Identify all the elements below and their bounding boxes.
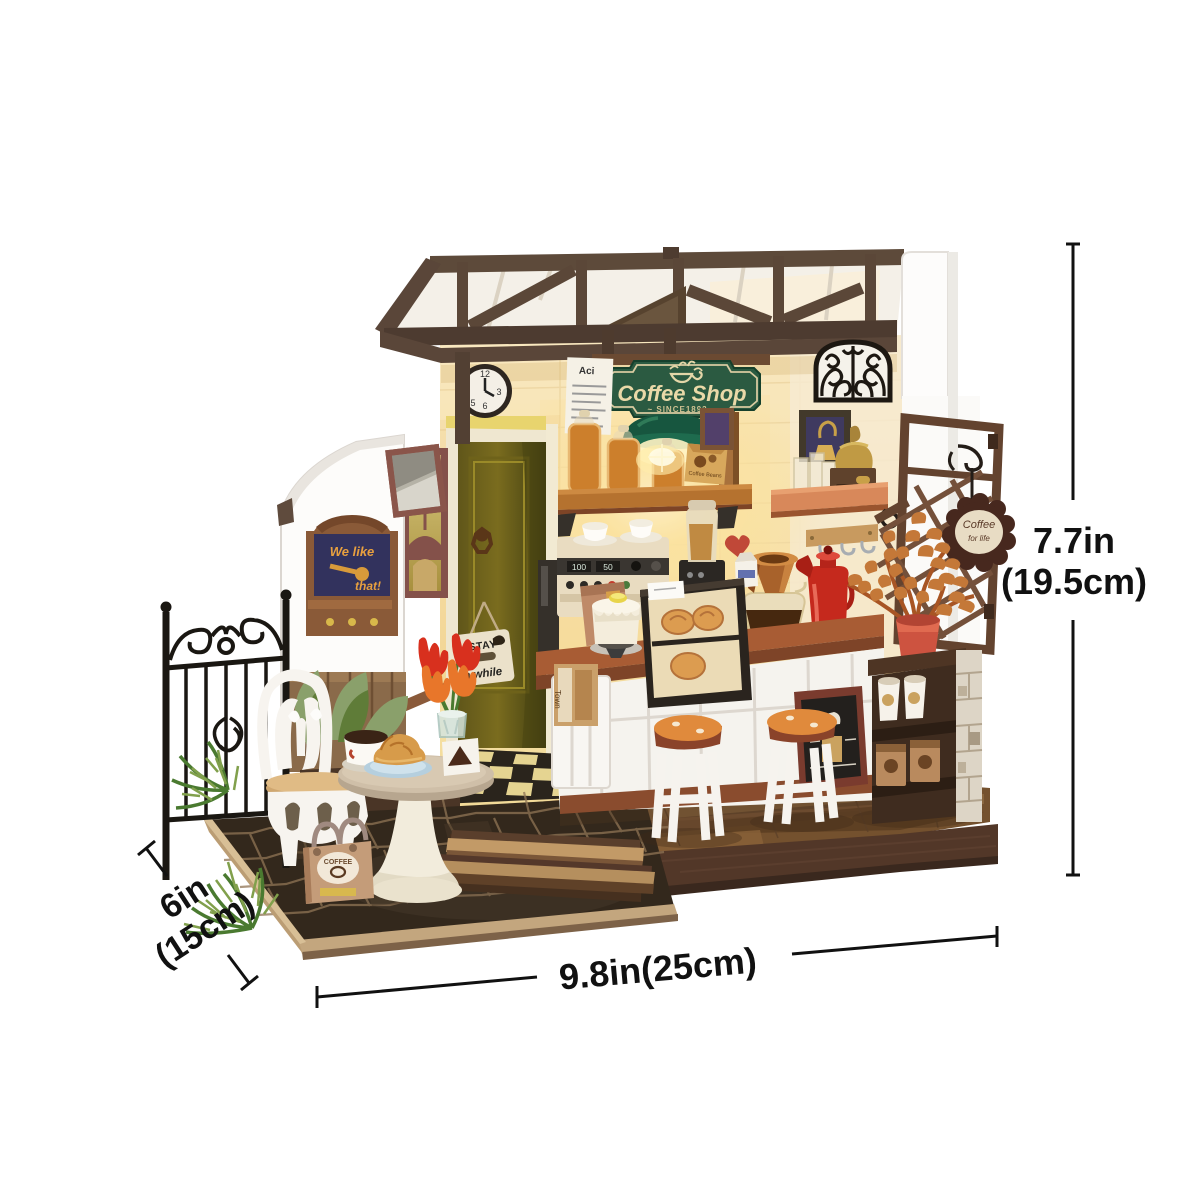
- svg-text:Coffee: Coffee: [963, 519, 995, 531]
- svg-text:that!: that!: [355, 579, 381, 593]
- svg-text:COFFEE: COFFEE: [324, 859, 353, 866]
- svg-text:100: 100: [572, 562, 586, 572]
- svg-text:5: 5: [470, 398, 475, 408]
- svg-text:Aci: Aci: [579, 366, 595, 378]
- svg-text:for life: for life: [968, 534, 990, 543]
- svg-text:(19.5cm): (19.5cm): [1001, 561, 1147, 602]
- svg-text:50: 50: [603, 562, 613, 572]
- svg-text:7.7in: 7.7in: [1033, 520, 1115, 561]
- svg-text:Town: Town: [553, 690, 562, 709]
- svg-text:3: 3: [496, 387, 501, 397]
- svg-text:12: 12: [480, 369, 490, 379]
- svg-text:Coffee Shop: Coffee Shop: [617, 381, 746, 406]
- svg-text:6: 6: [482, 401, 487, 411]
- svg-text:We like: We like: [330, 544, 375, 559]
